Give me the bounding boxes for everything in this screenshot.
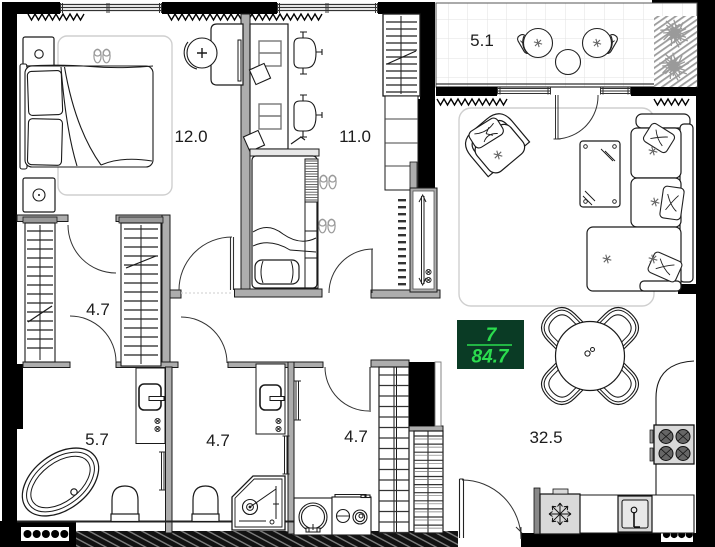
svg-text:5.1: 5.1 (470, 31, 494, 50)
svg-text:84.7: 84.7 (472, 347, 510, 368)
svg-text:4.7: 4.7 (206, 431, 230, 450)
svg-text:12.0: 12.0 (174, 127, 207, 146)
svg-text:4.7: 4.7 (86, 300, 110, 319)
svg-text:4.7: 4.7 (344, 427, 368, 446)
svg-text:32.5: 32.5 (529, 428, 562, 447)
svg-text:7: 7 (486, 325, 498, 346)
svg-text:5.7: 5.7 (85, 430, 109, 449)
svg-text:11.0: 11.0 (339, 127, 371, 146)
